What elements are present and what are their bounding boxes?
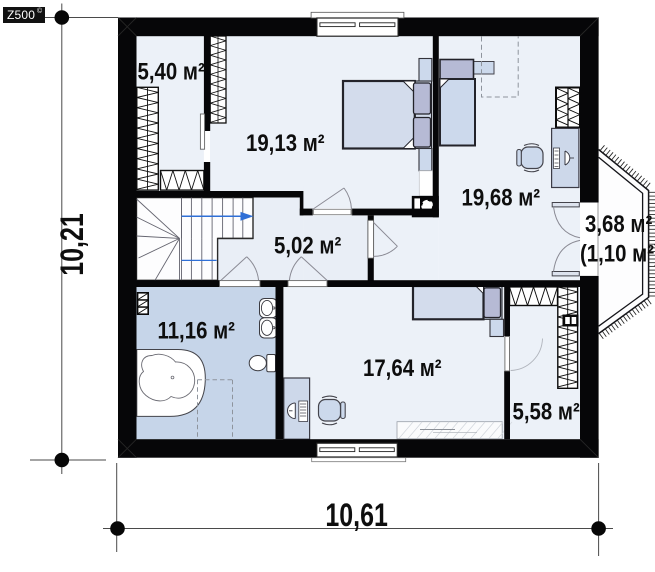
svg-text:19,13 м²: 19,13 м² [246,129,325,156]
svg-text:3,68 м²: 3,68 м² [585,211,652,238]
svg-text:11,16 м²: 11,16 м² [158,317,235,344]
svg-text:5,02 м²: 5,02 м² [274,232,341,259]
svg-text:5,58 м²: 5,58 м² [513,398,580,425]
svg-text:10,21: 10,21 [55,213,91,275]
svg-text:19,68 м²: 19,68 м² [462,184,541,211]
svg-text:17,64 м²: 17,64 м² [363,354,442,381]
svg-text:5,40 м²: 5,40 м² [138,58,205,85]
svg-text:10,61: 10,61 [325,498,387,534]
svg-text:Z500: Z500 [7,8,35,22]
svg-text:©: © [37,7,43,15]
svg-text:(1,10 м²): (1,10 м²) [580,240,655,267]
